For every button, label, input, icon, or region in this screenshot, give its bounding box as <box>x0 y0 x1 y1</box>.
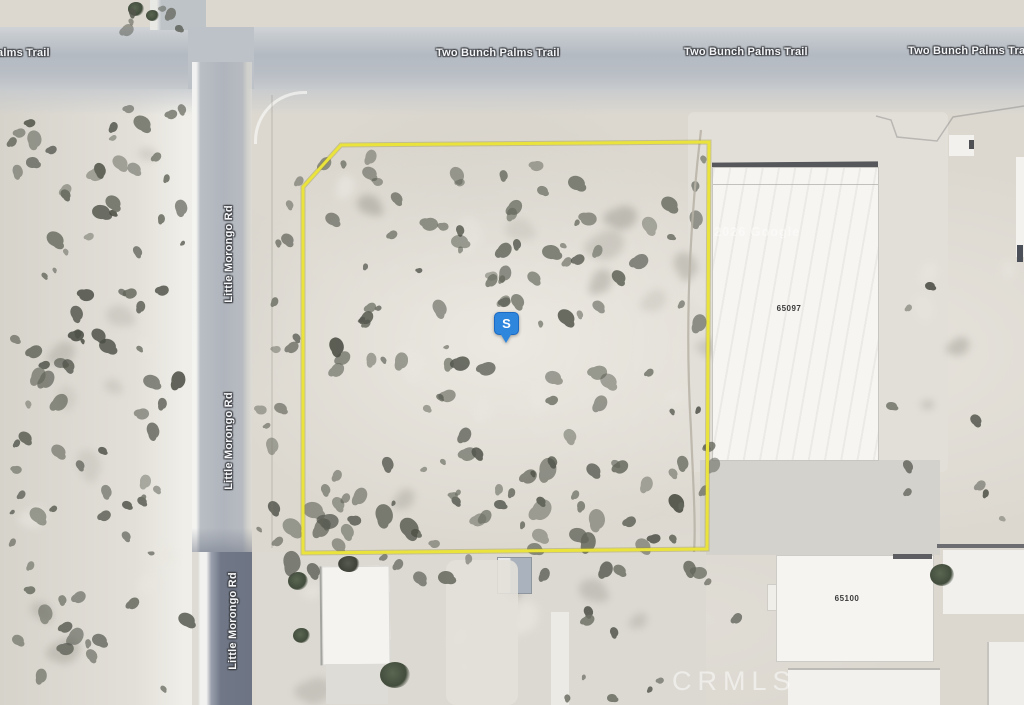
marker-pin: S <box>494 312 519 335</box>
shrub <box>538 457 557 480</box>
shrub <box>983 489 990 497</box>
building-65100-roof <box>776 555 934 662</box>
terrain-smudge <box>505 218 532 240</box>
shrub <box>373 178 383 186</box>
shrub <box>581 531 596 550</box>
road-label-little-morongo-rd: Little Morongo Rd <box>223 386 235 496</box>
road-little-morongo <box>192 62 252 554</box>
building-southwest-annex <box>326 664 388 704</box>
road-shoulder <box>0 89 1024 115</box>
tree <box>293 628 310 643</box>
building-number: 65097 <box>766 304 812 313</box>
building-shadow <box>1017 245 1023 262</box>
shrub <box>666 233 674 240</box>
shrub <box>11 465 21 474</box>
building-65100-annex <box>788 668 940 705</box>
road-surface-transition <box>192 528 252 552</box>
shrub <box>581 213 597 226</box>
road-label-little-morongo-rd: Little Morongo Rd <box>227 566 239 676</box>
property-marker[interactable]: S <box>494 312 519 343</box>
shrub <box>365 352 376 365</box>
tree <box>288 572 308 590</box>
tree <box>146 10 159 21</box>
shrub <box>149 550 155 555</box>
building-roof-edge <box>937 544 1024 548</box>
road-label-two-bunch-palms-trail: Two Bunch Palms Trail <box>0 47 50 59</box>
driveway <box>446 560 518 705</box>
road-label-little-morongo-rd: Little Morongo Rd <box>223 199 235 309</box>
shrub <box>139 474 151 488</box>
road-label-two-bunch-palms-trail: Two Bunch Palms Trail <box>908 45 1024 57</box>
shrub <box>458 246 463 252</box>
shrub <box>157 214 165 223</box>
building-65097-roof <box>712 167 879 461</box>
building-east-edge <box>1016 157 1024 257</box>
building-southeast-roof <box>943 550 1024 614</box>
shrub <box>174 24 183 32</box>
satellite-map[interactable]: Two Bunch Palms Trail Two Bunch Palms Tr… <box>0 0 1024 705</box>
shrub <box>438 222 448 230</box>
shrub <box>363 263 368 269</box>
shrub <box>577 500 586 511</box>
marker-label: S <box>502 316 511 331</box>
shrub <box>158 397 167 408</box>
driveway-pad <box>700 460 940 555</box>
shrub <box>421 217 438 231</box>
tree <box>380 662 410 688</box>
shrub <box>606 694 616 702</box>
marker-tail-icon <box>500 333 512 343</box>
road-little-morongo-paved <box>192 552 252 705</box>
terrain-smudge <box>105 304 131 325</box>
tree <box>930 564 954 586</box>
shrub <box>494 484 502 494</box>
shrub <box>163 174 170 182</box>
shed-shadow <box>969 140 974 149</box>
building-southwest-roof <box>319 566 390 666</box>
imagery-watermark: 2026 Google <box>714 224 800 239</box>
road-label-two-bunch-palms-trail: Two Bunch Palms Trail <box>684 46 808 58</box>
walkway <box>551 612 569 705</box>
building-number: 65100 <box>824 594 870 603</box>
mls-watermark: CRMLS <box>672 666 797 697</box>
shrub <box>25 156 39 167</box>
building-roof-edge <box>893 554 932 559</box>
bush <box>338 556 360 572</box>
shrub <box>519 521 524 528</box>
road-label-two-bunch-palms-trail: Two Bunch Palms Trail <box>436 47 560 59</box>
building-southeast-annex <box>987 642 1024 705</box>
